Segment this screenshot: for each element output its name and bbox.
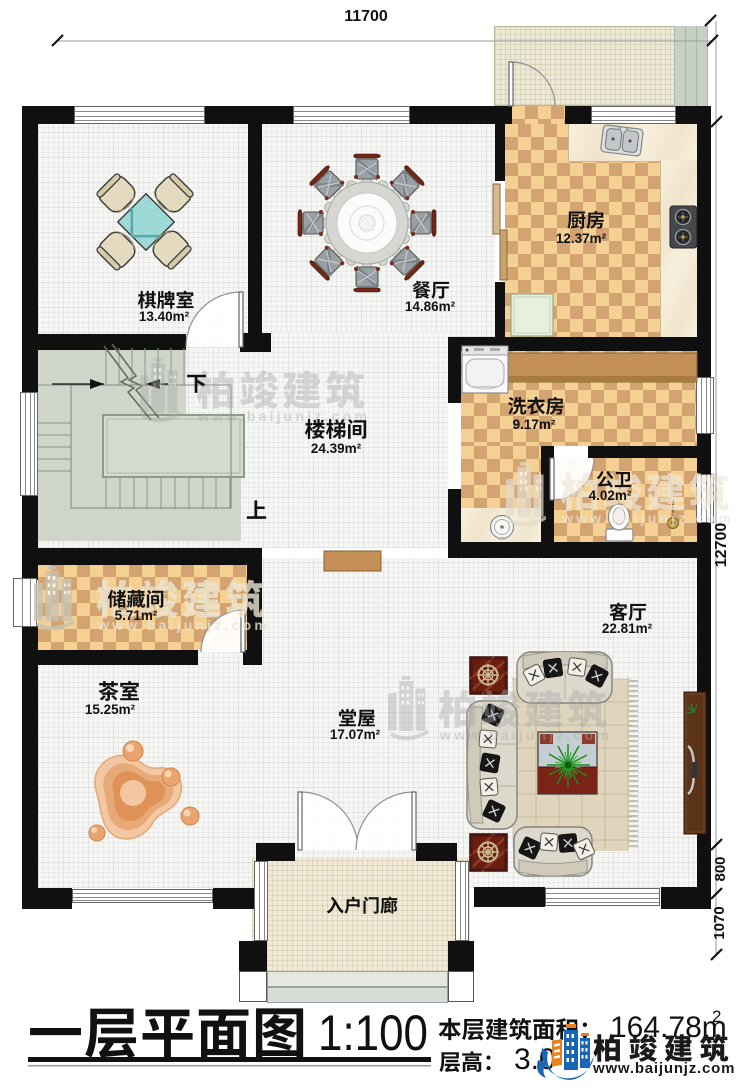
svg-text:11700: 11700: [344, 8, 388, 25]
svg-text:15.25m²: 15.25m²: [85, 702, 136, 717]
svg-text:9.17m²: 9.17m²: [513, 417, 556, 432]
svg-text:14.86m²: 14.86m²: [405, 299, 456, 314]
svg-text:www.baijunjz.com: www.baijunjz.com: [197, 408, 370, 424]
svg-text:12.37m²: 12.37m²: [556, 231, 607, 246]
svg-text:5.71m²: 5.71m²: [115, 608, 158, 623]
svg-text:13.40m²: 13.40m²: [139, 309, 190, 324]
svg-text:1:100: 1:100: [318, 1005, 428, 1061]
svg-text:1070: 1070: [711, 906, 728, 939]
svg-text:www.baijunjz.com: www.baijunjz.com: [561, 510, 734, 526]
svg-text:2: 2: [712, 1007, 721, 1026]
svg-text:3.0: 3.0: [514, 1043, 556, 1076]
svg-text:12700: 12700: [713, 523, 730, 568]
svg-text:22.81m²: 22.81m²: [602, 621, 653, 636]
svg-text:24.39m²: 24.39m²: [311, 441, 362, 456]
svg-text:www.baijunjz.com: www.baijunjz.com: [592, 1060, 735, 1077]
svg-text:17.07m²: 17.07m²: [330, 727, 381, 742]
svg-text:4.02m²: 4.02m²: [589, 488, 632, 503]
svg-text:800: 800: [712, 856, 729, 881]
svg-text:www.baijunjz.com: www.baijunjz.com: [439, 727, 612, 743]
